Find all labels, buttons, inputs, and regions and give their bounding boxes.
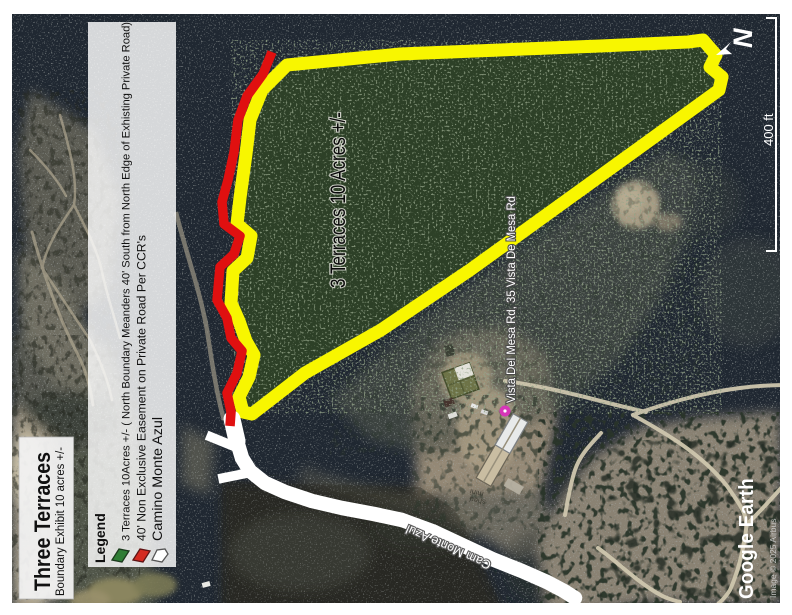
svg-text:40' Non Exclusive Easement on: 40' Non Exclusive Easement on Private Ro… (135, 235, 149, 541)
svg-text:Boundary Exhibit 10 acres +/-: Boundary Exhibit 10 acres +/- (53, 447, 67, 596)
svg-text:3 Terraces 10Acres +/- ( Nort: 3 Terraces 10Acres +/- ( North Boundary … (121, 22, 133, 541)
svg-text:Google Earth: Google Earth (736, 478, 758, 599)
svg-text:Three Terraces: Three Terraces (30, 452, 55, 591)
svg-text:Camino Monte Azul: Camino Monte Azul (150, 417, 165, 541)
svg-text:Image © 2025 Airbus: Image © 2025 Airbus (768, 518, 778, 598)
svg-text:N: N (728, 28, 758, 48)
svg-text:Vista Del Mesa Rd, 35 Vista De: Vista Del Mesa Rd, 35 Vista De Mesa Rd (504, 196, 518, 403)
svg-text:Legend: Legend (92, 513, 108, 563)
svg-text:3 Terraces 10 Acres +/-: 3 Terraces 10 Acres +/- (327, 112, 350, 288)
svg-text:400 ft: 400 ft (761, 113, 776, 146)
